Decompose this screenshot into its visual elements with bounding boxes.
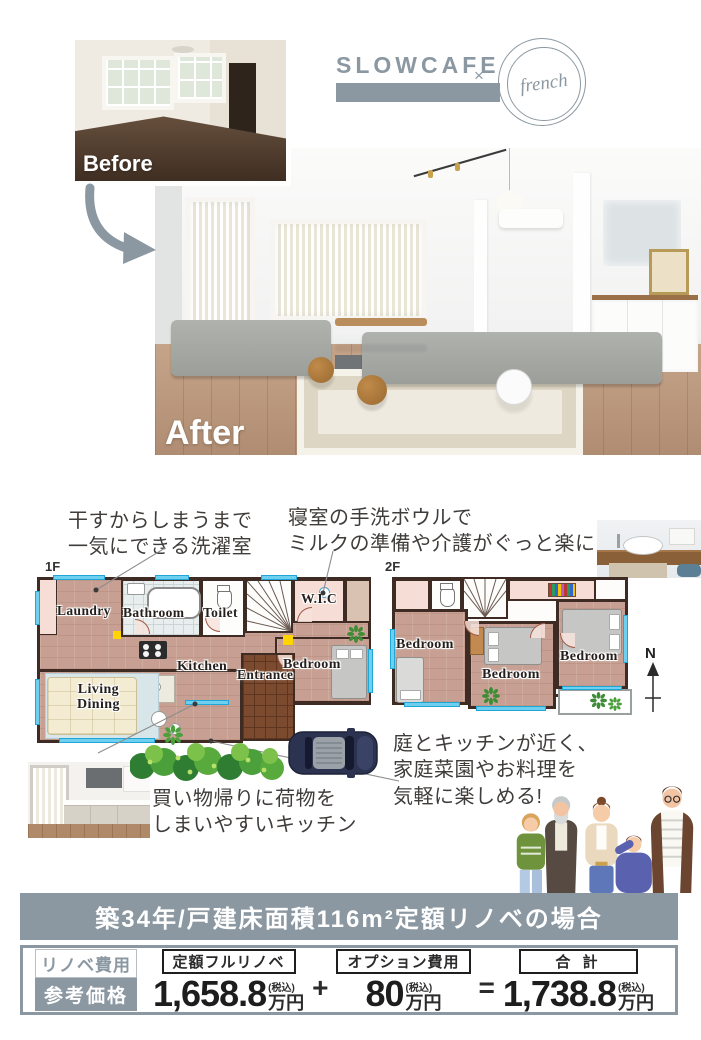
car-illustration (287, 728, 379, 778)
lower-cabinets (64, 805, 150, 826)
hedge-illustration (130, 736, 286, 784)
before-photo: Before (75, 40, 291, 186)
window (270, 219, 427, 321)
after-label: After (165, 414, 244, 453)
before-after-arrow-icon (70, 180, 170, 272)
dining-table (335, 318, 427, 326)
tax-note: (税込) (618, 984, 645, 994)
price-side-box: リノベ費用 参考価格 (35, 949, 137, 1011)
unit: 万円 (618, 994, 654, 1012)
tax-note: (税込) (406, 984, 433, 994)
bulb-icon (455, 163, 460, 171)
price-label-full-reno: 定額フルリノベ (162, 949, 296, 974)
pendant-cord (509, 148, 510, 192)
equals-sign: = (479, 972, 495, 1004)
price-amount-total: 1,738.8 (税込) 万円 (503, 976, 654, 1012)
price-side-top: リノベ費用 (35, 949, 137, 978)
price-group-total: 合 計 1,738.8 (税込) 万円 (503, 949, 654, 1012)
stamp-inner-circle: french (507, 47, 581, 121)
bulb-icon (428, 170, 433, 178)
family-illustration (508, 772, 701, 893)
range-hood (86, 768, 122, 788)
price-amount-full-reno: 1,658.8 (税込) 万円 (153, 976, 304, 1012)
window (174, 53, 226, 103)
price-band: 築34年/戸建床面積116m²定額リノベの場合 (20, 893, 678, 940)
renovation-flyer: After Before SLOWCAFE × french 干すからしまうまで… (0, 0, 701, 1040)
price-group-full-reno: 定額フルリノベ 1,658.8 (税込) 万円 (153, 949, 304, 1012)
tax-note: (税込) (268, 984, 295, 994)
picture-frame (649, 249, 689, 295)
stamp-text: french (519, 70, 569, 98)
column (474, 200, 487, 341)
window (102, 56, 173, 111)
wood-stool (357, 375, 387, 405)
price-group-option: オプション費用 80 (税込) 万円 (336, 949, 470, 1012)
air-conditioner (499, 209, 563, 228)
logo-times-symbol: × (474, 66, 484, 86)
unit: 万円 (406, 994, 442, 1012)
after-photo: After (155, 148, 701, 455)
logo-french-stamp: french (498, 38, 586, 126)
price-amount-option: 80 (税込) 万円 (365, 976, 441, 1012)
before-label: Before (83, 151, 153, 177)
price-side-bottom: 参考価格 (35, 978, 137, 1011)
price-label-total: 合 計 (519, 949, 637, 974)
unit: 万円 (268, 994, 304, 1012)
wood-floor (28, 824, 150, 838)
pricing-box: リノベ費用 参考価格 定額フルリノベ 1,658.8 (税込) 万円 + オプシ… (20, 945, 678, 1015)
wood-stool (308, 357, 334, 383)
plus-sign: + (312, 972, 328, 1004)
price-label-option: オプション費用 (336, 949, 470, 974)
ceiling-light (172, 46, 194, 53)
price-band-title: 築34年/戸建床面積116m²定額リノベの場合 (95, 899, 602, 934)
